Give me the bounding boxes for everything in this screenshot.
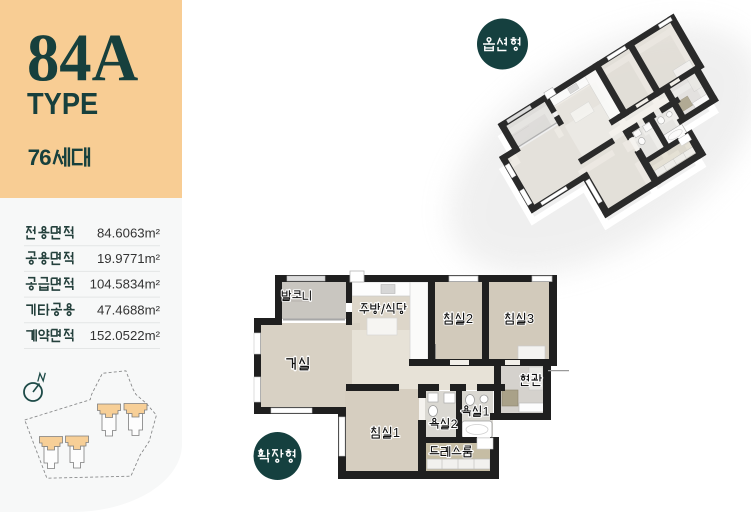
svg-text:TYPE: TYPE xyxy=(27,87,98,121)
svg-text:84A: 84A xyxy=(27,21,138,96)
svg-text:152.0522m²: 152.0522m² xyxy=(90,328,161,343)
svg-text:104.5834m²: 104.5834m² xyxy=(90,277,161,292)
svg-text:2: 2 xyxy=(466,311,473,326)
svg-text:19.9771m²: 19.9771m² xyxy=(97,251,161,266)
svg-text:2: 2 xyxy=(451,417,458,431)
svg-text:47.4688m²: 47.4688m² xyxy=(97,302,161,317)
svg-text:84.6063m²: 84.6063m² xyxy=(97,225,161,240)
svg-text:6: 6 xyxy=(39,145,51,170)
svg-text:1: 1 xyxy=(393,425,400,440)
svg-text:1: 1 xyxy=(483,404,490,418)
svg-text:3: 3 xyxy=(527,311,534,326)
svg-text:7: 7 xyxy=(28,145,40,170)
